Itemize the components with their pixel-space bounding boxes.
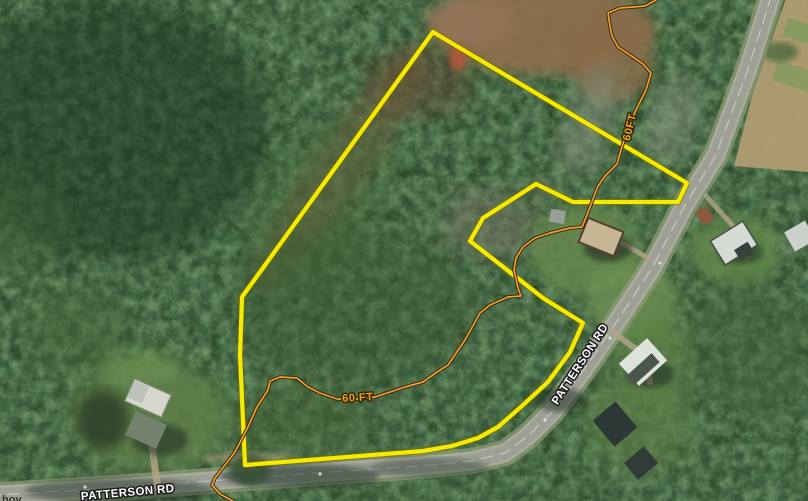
cutoff-corner-text: hov (2, 494, 22, 501)
satellite-map-canvas[interactable]: 60FT 60 FT PATTERSON RD PATTERSON RD hov (0, 0, 808, 501)
satellite-map[interactable]: 60FT 60 FT PATTERSON RD PATTERSON RD hov (0, 0, 808, 501)
building-notch-shed (549, 209, 566, 224)
row-width-label-mid: 60 FT (342, 391, 374, 405)
